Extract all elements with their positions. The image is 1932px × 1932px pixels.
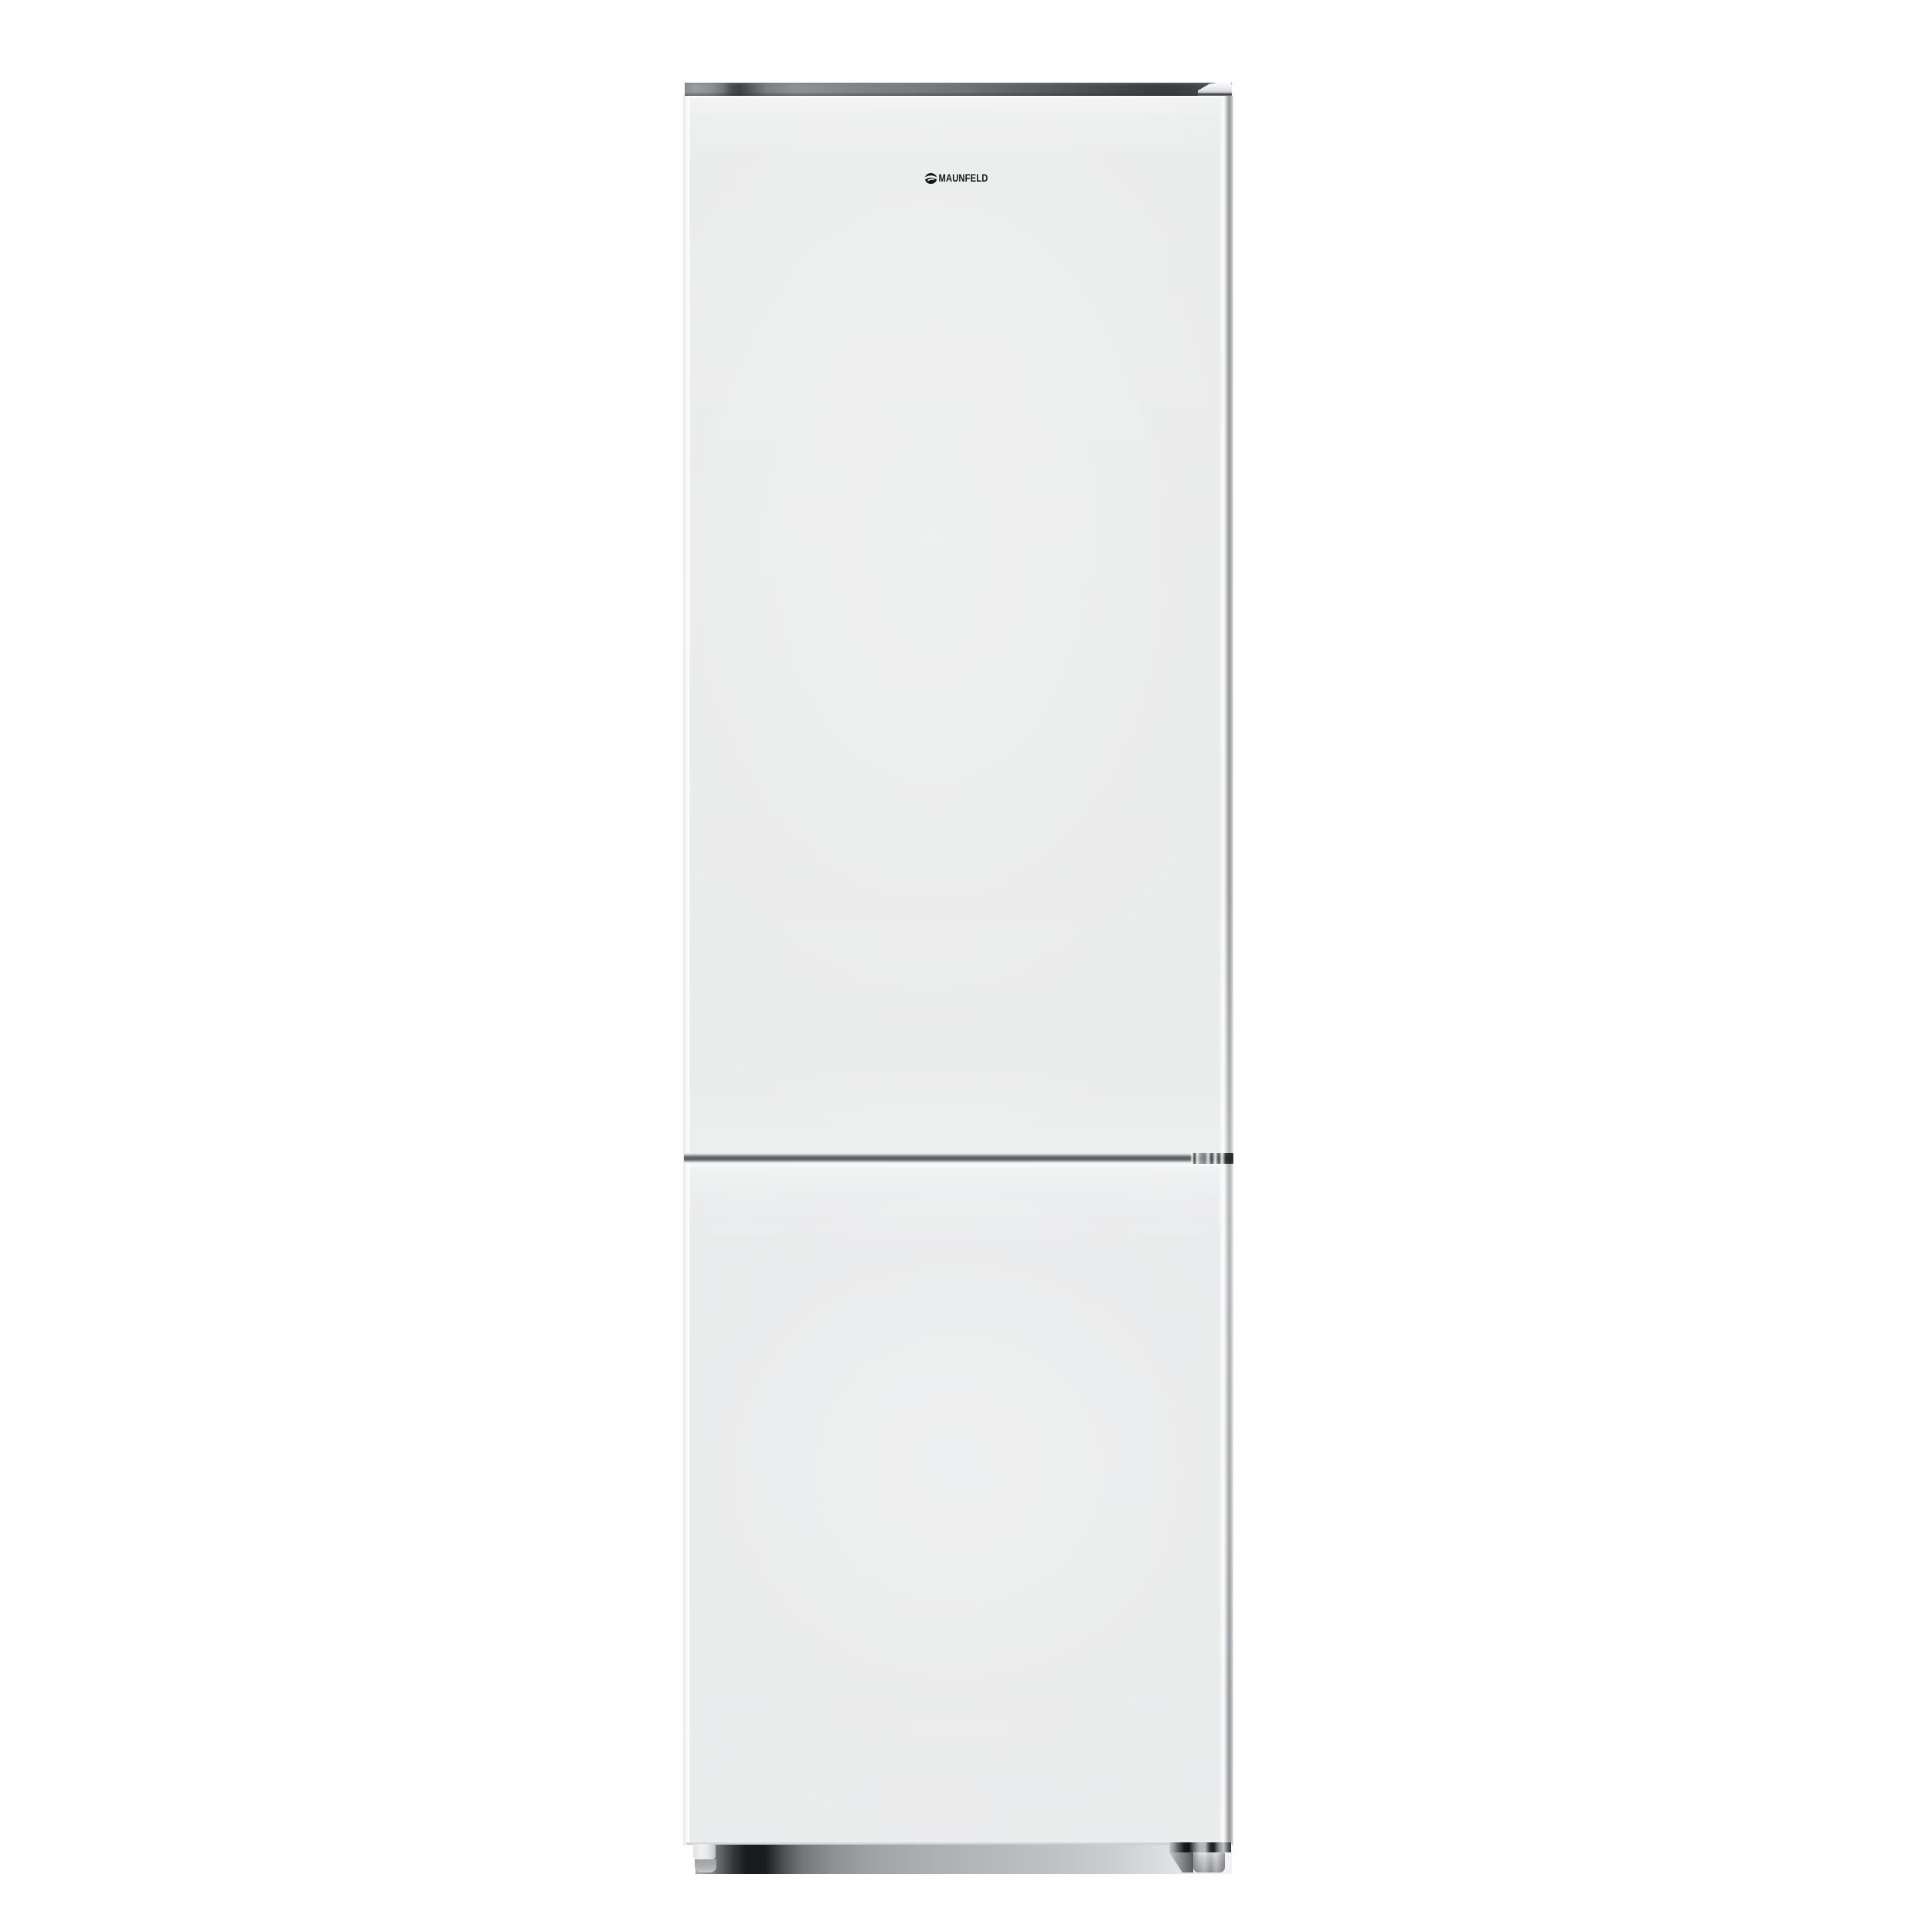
svg-text:MAUNFELD: MAUNFELD (939, 172, 988, 184)
